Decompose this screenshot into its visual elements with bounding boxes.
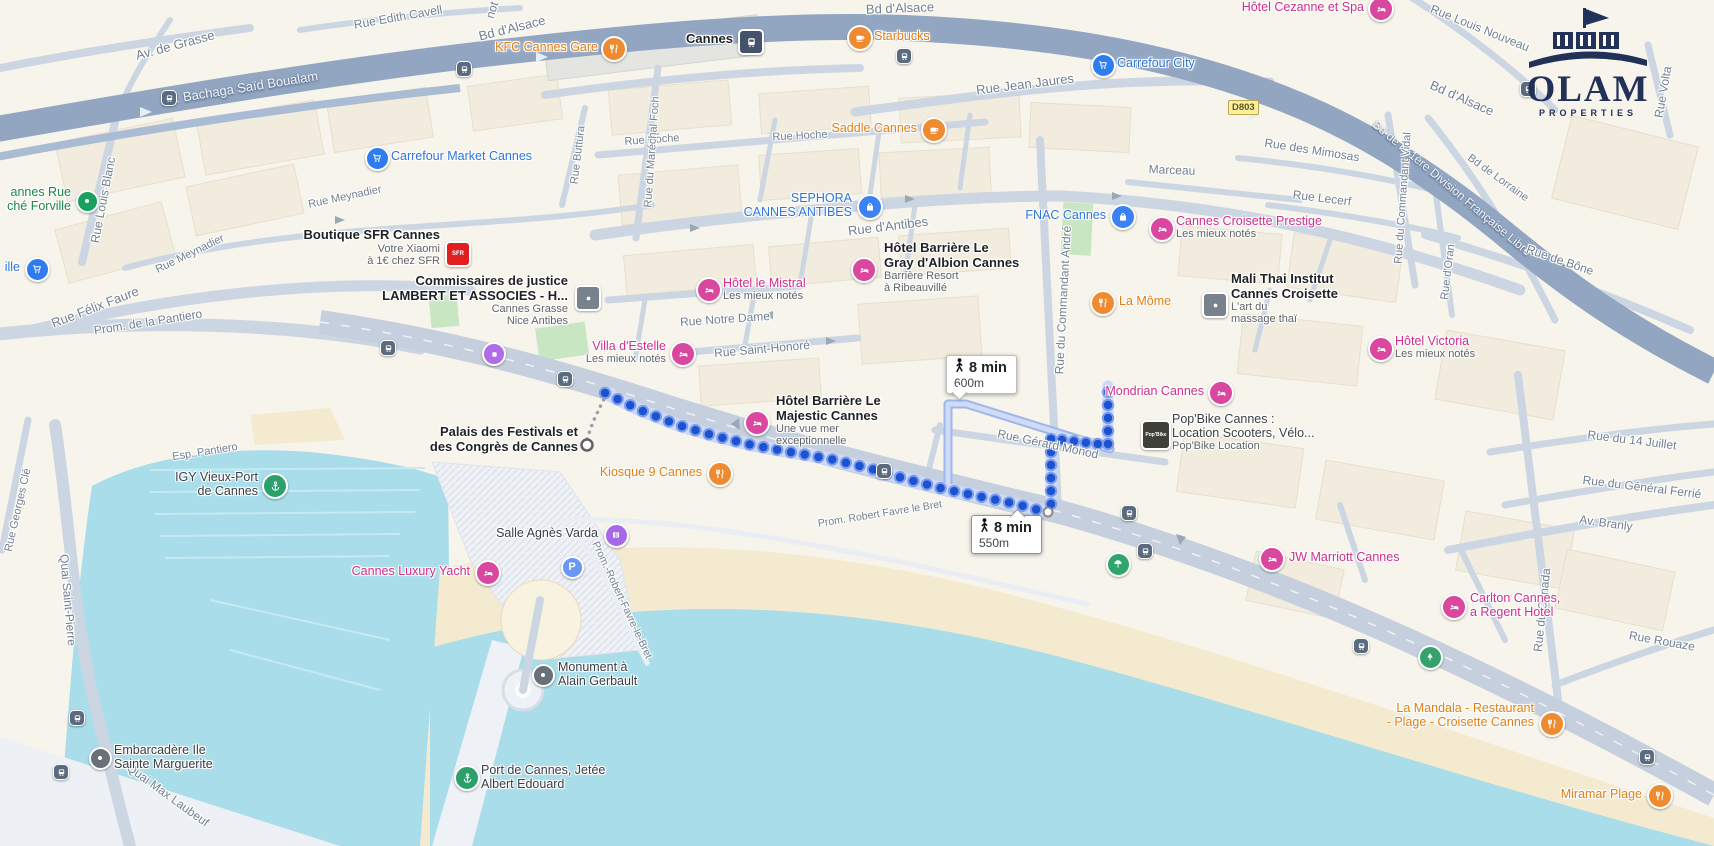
hotel-victoria-label[interactable]: Hôtel VictoriaLes mieux notés (1395, 334, 1475, 360)
logo-title: OLAM (1498, 75, 1678, 105)
carrefour-city-icon[interactable] (1091, 53, 1116, 78)
monument-gerbault-icon[interactable] (532, 664, 555, 687)
majestic-icon[interactable] (744, 410, 770, 436)
olam-logo-glyph (1523, 6, 1653, 70)
poi-layer: KFC Cannes GareCannesStarbucksCarrefour … (0, 0, 1714, 846)
saddle-cannes-label[interactable]: Saddle Cannes (832, 121, 917, 135)
cannes-luxury-yacht-icon[interactable] (475, 560, 501, 586)
carrefour-market-icon[interactable] (365, 146, 390, 171)
jw-marriott-icon[interactable] (1259, 546, 1285, 572)
hotel-mistral-icon[interactable] (696, 277, 722, 303)
boutique-sfr-icon[interactable]: SFR (445, 241, 471, 267)
sephora-label[interactable]: SEPHORACANNES ANTIBES (744, 191, 852, 219)
mali-thai-label[interactable]: Mali Thai InstitutCannes CroisetteL'art … (1231, 272, 1338, 326)
carlton-label[interactable]: Carlton Cannes,a Regent Hotel (1470, 591, 1560, 619)
badge-duration: 8 min (994, 520, 1032, 536)
port-jetee-icon[interactable] (454, 765, 480, 791)
olam-properties-logo: OLAM PROPERTIES (1498, 6, 1678, 118)
salle-agnes-varda-icon[interactable] (604, 523, 629, 548)
hotel-victoria-icon[interactable] (1368, 336, 1394, 362)
map-canvas[interactable]: Av. de GrasseRue Edith CavellnotBd d'Als… (0, 0, 1714, 846)
kfc-cannes-gare-icon[interactable] (601, 36, 627, 62)
cannes-luxury-yacht-label[interactable]: Cannes Luxury Yacht (352, 564, 470, 578)
la-mome-label[interactable]: La Môme (1119, 294, 1171, 308)
cannes-station-label[interactable]: Cannes (686, 32, 733, 47)
embarcadere-icon[interactable] (89, 747, 112, 770)
badge-distance: 550m (979, 536, 1032, 550)
miramar-plage-label[interactable]: Miramar Plage (1561, 787, 1642, 801)
beach-icon[interactable] (1106, 552, 1131, 577)
villa-destelle-label[interactable]: Villa d'EstelleLes mieux notés (586, 339, 666, 365)
popbike-icon[interactable]: Pop'Bike (1141, 420, 1171, 450)
salle-agnes-varda-label[interactable]: Salle Agnès Varda (496, 526, 598, 540)
bus-stop-icon[interactable] (456, 61, 472, 77)
kfc-cannes-gare-label[interactable]: KFC Cannes Gare (495, 40, 598, 54)
monument-gerbault-label[interactable]: Monument àAlain Gerbault (558, 660, 637, 688)
hotel-cezanne-label[interactable]: Hôtel Cezanne et Spa (1242, 0, 1364, 14)
mondrian-icon[interactable] (1208, 380, 1234, 406)
la-mandala-icon[interactable] (1539, 711, 1565, 737)
carrefour-market-label[interactable]: Carrefour Market Cannes (391, 149, 532, 163)
bus-stop-icon[interactable] (557, 371, 573, 387)
cannes-station-icon[interactable] (738, 29, 764, 55)
igy-vieux-port-icon[interactable] (262, 473, 288, 499)
bus-stop-icon[interactable] (1639, 749, 1655, 765)
fnac-cannes-label[interactable]: FNAC Cannes (1025, 208, 1106, 222)
jw-marriott-label[interactable]: JW Marriott Cannes (1289, 550, 1399, 564)
popbike-label[interactable]: Pop'Bike Cannes :Location Scooters, Vélo… (1172, 412, 1314, 452)
bus-stop-icon[interactable] (896, 48, 912, 64)
marche-forville-label[interactable]: annes Rueché Forville (7, 185, 71, 213)
shop-west-label[interactable]: ille (5, 260, 20, 274)
hotel-mistral-label[interactable]: Hôtel le MistralLes mieux notés (723, 276, 806, 302)
bus-stop-icon[interactable] (53, 764, 69, 780)
villa-destelle-icon[interactable] (670, 341, 696, 367)
walking-icon (954, 358, 965, 377)
parking-icon[interactable]: P (561, 556, 584, 579)
bus-stop-icon[interactable] (380, 340, 396, 356)
tree-icon[interactable] (1418, 645, 1443, 670)
mali-thai-icon[interactable] (1202, 292, 1228, 318)
port-jetee-label[interactable]: Port de Cannes, JetéeAlbert Edouard (481, 763, 605, 791)
carrefour-city-label[interactable]: Carrefour City (1117, 56, 1195, 70)
shop-west-icon[interactable] (25, 257, 50, 282)
la-mome-icon[interactable] (1090, 290, 1116, 316)
starbucks-label[interactable]: Starbucks (874, 29, 930, 43)
croisette-prestige-label[interactable]: Cannes Croisette PrestigeLes mieux notés (1176, 214, 1322, 240)
bus-stop-icon[interactable] (161, 90, 177, 106)
la-mandala-label[interactable]: La Mandala - Restaurant- Plage - Croiset… (1387, 701, 1534, 729)
gray-albion-icon[interactable] (851, 257, 877, 283)
igy-vieux-port-label[interactable]: IGY Vieux-Portde Cannes (175, 470, 258, 498)
commissaires-justice-icon[interactable] (575, 285, 601, 311)
kiosque-9-label[interactable]: Kiosque 9 Cannes (600, 465, 702, 479)
hotel-cezanne-icon[interactable] (1368, 0, 1394, 22)
mondrian-label[interactable]: Mondrian Cannes (1105, 384, 1204, 398)
bus-stop-icon[interactable] (1121, 505, 1137, 521)
kiosque-9-icon[interactable] (707, 461, 733, 487)
gray-albion-label[interactable]: Hôtel Barrière LeGray d'Albion CannesBar… (884, 241, 1019, 295)
bus-stop-icon[interactable] (876, 463, 892, 479)
logo-subtitle: PROPERTIES (1498, 108, 1678, 118)
boutique-sfr-label[interactable]: Boutique SFR CannesVotre Xiaomià 1€ chez… (303, 228, 440, 267)
sephora-icon[interactable] (857, 194, 883, 220)
walking-icon (979, 518, 990, 537)
croisette-prestige-icon[interactable] (1149, 216, 1175, 242)
commissaires-justice-label[interactable]: Commissaires de justiceLAMBERT ET ASSOCI… (382, 274, 568, 328)
route-badge-alternative[interactable]: 8 min 600m (946, 355, 1017, 394)
embarcadere-label[interactable]: Embarcadère IleSainte Marguerite (114, 743, 213, 771)
fnac-cannes-icon[interactable] (1110, 204, 1136, 230)
attraction-icon[interactable] (482, 342, 506, 366)
bus-stop-icon[interactable] (69, 710, 85, 726)
saddle-cannes-icon[interactable] (921, 117, 947, 143)
route-badge-selected[interactable]: 8 min 550m (971, 515, 1042, 554)
badge-duration: 8 min (969, 360, 1007, 376)
bus-stop-icon[interactable] (1353, 638, 1369, 654)
starbucks-icon[interactable] (847, 25, 873, 51)
marche-forville-icon[interactable] (76, 190, 99, 213)
road-shield-d803: D803 (1228, 100, 1259, 115)
bus-stop-icon[interactable] (1137, 543, 1153, 559)
miramar-plage-icon[interactable] (1647, 783, 1673, 809)
carlton-icon[interactable] (1441, 594, 1467, 620)
palais-festivals-label[interactable]: Palais des Festivals etdes Congrès de Ca… (430, 425, 578, 454)
majestic-label[interactable]: Hôtel Barrière LeMajestic CannesUne vue … (776, 394, 881, 448)
